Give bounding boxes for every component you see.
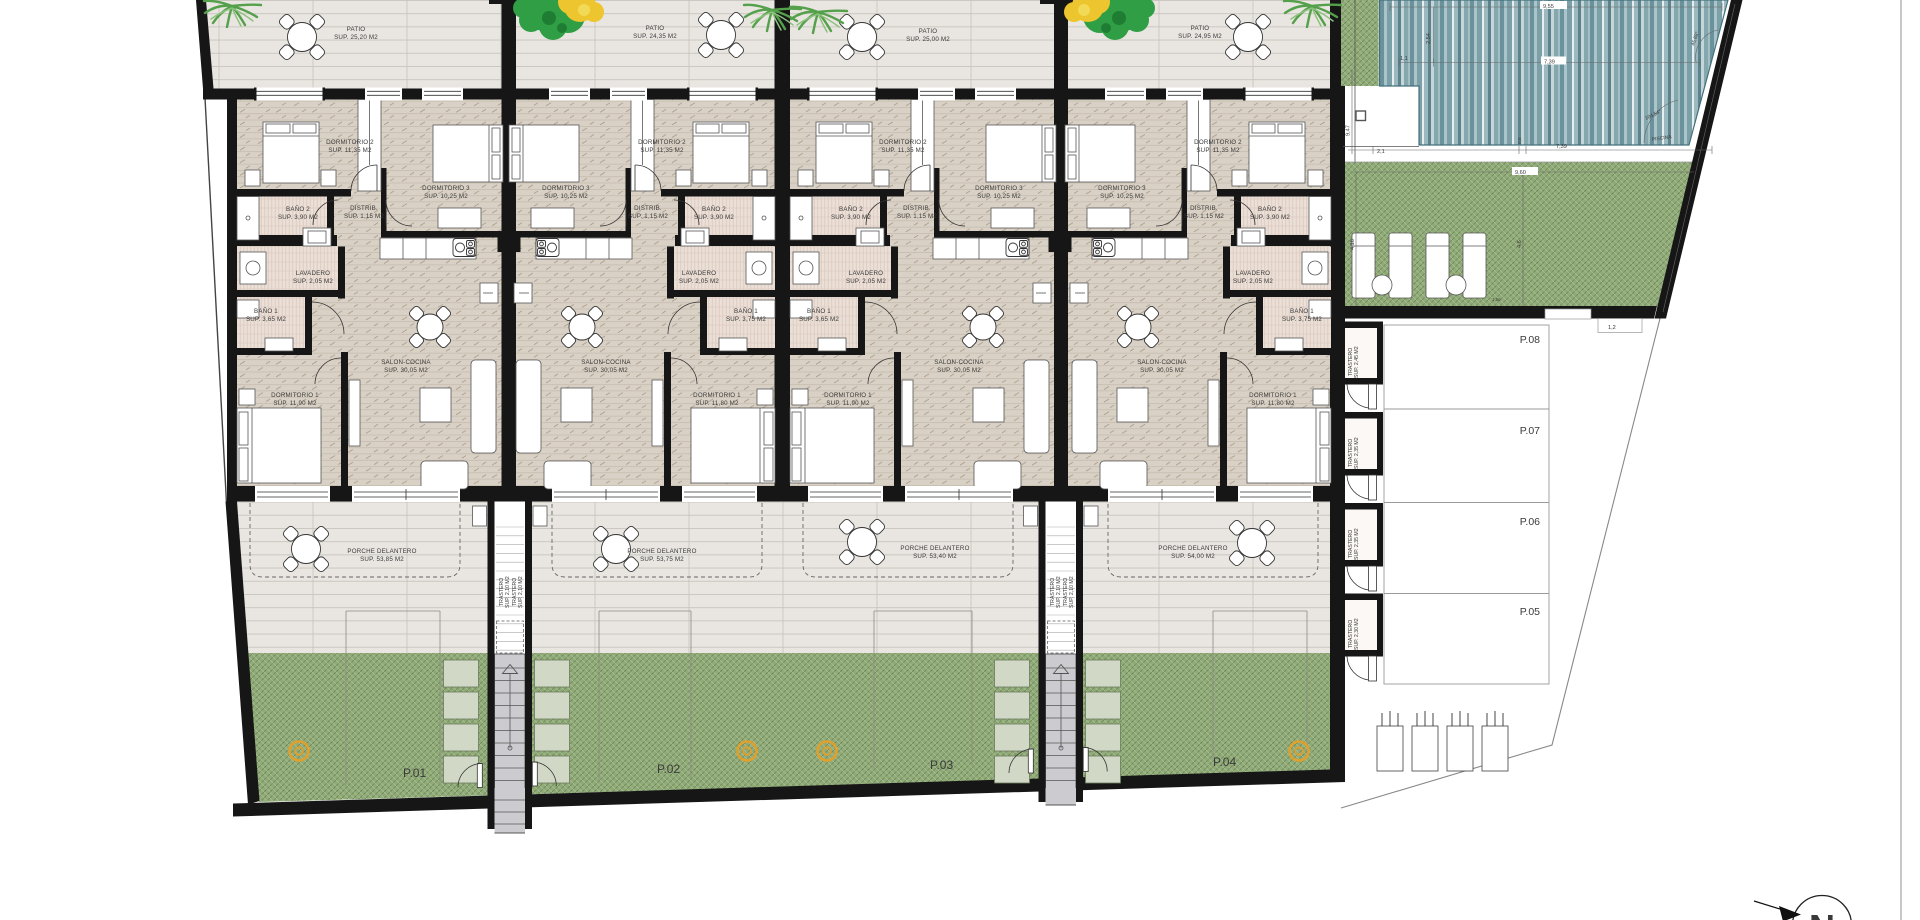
svg-text:SUP. 10,25 M2: SUP. 10,25 M2 (424, 193, 468, 200)
svg-text:SUP. 30,05 M2: SUP. 30,05 M2 (937, 367, 981, 374)
svg-text:DORMITORIO 3: DORMITORIO 3 (422, 185, 470, 192)
svg-text:SUP. 2,10 M2: SUP. 2,10 M2 (518, 576, 524, 608)
svg-text:SUP. 11,90 M2: SUP. 11,90 M2 (826, 400, 870, 407)
svg-text:P.07: P.07 (1520, 425, 1540, 437)
svg-text:SUP. 10,25 M2: SUP. 10,25 M2 (544, 193, 588, 200)
svg-text:SUP. 2,35 M2: SUP. 2,35 M2 (1354, 437, 1360, 469)
svg-text:LAVADERO: LAVADERO (296, 270, 330, 277)
svg-text:SUP. 2,35 M2: SUP. 2,35 M2 (1354, 528, 1360, 560)
svg-text:SUP. 11,80 M2: SUP. 11,80 M2 (1251, 400, 1295, 407)
svg-text:BAÑO 1: BAÑO 1 (807, 308, 831, 315)
svg-text:7,39: 7,39 (1544, 60, 1555, 66)
svg-text:BAÑO 1: BAÑO 1 (734, 308, 758, 315)
svg-text:SUP. 10,25 M2: SUP. 10,25 M2 (977, 193, 1021, 200)
svg-text:1,2: 1,2 (1608, 325, 1616, 331)
svg-text:P.06: P.06 (1520, 516, 1540, 528)
svg-text:1,56: 1,56 (1492, 297, 1501, 302)
svg-text:DISTRIB.: DISTRIB. (350, 205, 378, 212)
svg-text:SUP. 2,05 M2: SUP. 2,05 M2 (679, 278, 719, 285)
svg-text:DISTRIB.: DISTRIB. (634, 205, 662, 212)
svg-text:LAVADERO: LAVADERO (1236, 270, 1270, 277)
svg-text:DISTRIB.: DISTRIB. (1190, 205, 1218, 212)
svg-text:SALON-COCINA: SALON-COCINA (1137, 359, 1187, 366)
svg-text:DORMITORIO 3: DORMITORIO 3 (975, 185, 1023, 192)
svg-text:BAÑO 2: BAÑO 2 (839, 206, 863, 213)
svg-text:SUP. 3,65 M2: SUP. 3,65 M2 (799, 316, 839, 323)
svg-text:SUP. 11,35 M2: SUP. 11,35 M2 (881, 147, 925, 154)
svg-text:SUP. 24,95 M2: SUP. 24,95 M2 (1178, 33, 1222, 40)
svg-text:PORCHE DELANTERO: PORCHE DELANTERO (1158, 545, 1227, 552)
svg-text:PATIO: PATIO (347, 26, 366, 33)
svg-text:SUP. 1,15 M2: SUP. 1,15 M2 (897, 213, 937, 220)
svg-text:DORMITORIO 2: DORMITORIO 2 (638, 139, 686, 146)
svg-text:DORMITORIO 1: DORMITORIO 1 (271, 392, 319, 399)
svg-text:BAÑO 1: BAÑO 1 (254, 308, 278, 315)
svg-text:SUP. 2,10 M2: SUP. 2,10 M2 (1056, 576, 1062, 608)
svg-text:SUP. 2,30 M2: SUP. 2,30 M2 (1354, 618, 1360, 650)
svg-text:SUP. 2,10 M2: SUP. 2,10 M2 (505, 576, 511, 608)
svg-text:SUP. 24,35 M2: SUP. 24,35 M2 (633, 33, 677, 40)
svg-text:SUP. 3,90 M2: SUP. 3,90 M2 (694, 214, 734, 221)
svg-text:SUP. 2,05 M2: SUP. 2,05 M2 (293, 278, 333, 285)
svg-text:P.08: P.08 (1520, 334, 1540, 346)
svg-text:SUP. 3,90 M2: SUP. 3,90 M2 (1250, 214, 1290, 221)
svg-text:4,16: 4,16 (1350, 239, 1356, 250)
svg-text:SUP. 3,90 M2: SUP. 3,90 M2 (831, 214, 871, 221)
svg-text:SUP. 25,00 M2: SUP. 25,00 M2 (906, 36, 950, 43)
svg-text:LAVADERO: LAVADERO (849, 270, 883, 277)
svg-text:BAÑO 2: BAÑO 2 (702, 206, 726, 213)
svg-text:9,60: 9,60 (1515, 170, 1526, 176)
svg-text:P.01: P.01 (403, 766, 426, 780)
svg-text:DORMITORIO 3: DORMITORIO 3 (542, 185, 590, 192)
svg-text:P.05: P.05 (1520, 606, 1540, 618)
svg-text:BAÑO 2: BAÑO 2 (286, 206, 310, 213)
svg-text:SALON-COCINA: SALON-COCINA (934, 359, 984, 366)
svg-text:PORCHE DELANTERO: PORCHE DELANTERO (900, 545, 969, 552)
svg-text:PORCHE DELANTERO: PORCHE DELANTERO (627, 548, 696, 555)
svg-text:SUP. 3,75 M2: SUP. 3,75 M2 (726, 316, 766, 323)
svg-text:P.04: P.04 (1213, 755, 1236, 769)
svg-text:DORMITORIO 2: DORMITORIO 2 (1194, 139, 1242, 146)
svg-text:SUP. 2,45 M2: SUP. 2,45 M2 (1354, 346, 1360, 378)
svg-text:SUP. 25,20 M2: SUP. 25,20 M2 (334, 34, 378, 41)
svg-text:PATIO: PATIO (919, 28, 938, 35)
svg-text:SUP. 53,40 M2: SUP. 53,40 M2 (913, 553, 957, 560)
svg-text:SUP. 1,15 M2: SUP. 1,15 M2 (344, 213, 384, 220)
svg-text:SUP. 30,05 M2: SUP. 30,05 M2 (584, 367, 628, 374)
svg-text:9,55: 9,55 (1543, 4, 1554, 10)
svg-text:SUP. 3,75 M2: SUP. 3,75 M2 (1282, 316, 1322, 323)
svg-text:SUP. 1,15 M2: SUP. 1,15 M2 (1184, 213, 1224, 220)
svg-text:P.02: P.02 (657, 762, 680, 776)
svg-text:SUP. 1,15 M2: SUP. 1,15 M2 (628, 213, 668, 220)
svg-text:DORMITORIO 2: DORMITORIO 2 (879, 139, 927, 146)
svg-text:DORMITORIO 1: DORMITORIO 1 (1249, 392, 1297, 399)
svg-text:SUP. 30,05 M2: SUP. 30,05 M2 (1140, 367, 1184, 374)
svg-text:SUP. 54,00 M2: SUP. 54,00 M2 (1171, 553, 1215, 560)
svg-text:DORMITORIO 2: DORMITORIO 2 (326, 139, 374, 146)
svg-text:7,39: 7,39 (1556, 144, 1567, 150)
svg-text:2,54: 2,54 (1426, 33, 1432, 44)
svg-text:SUP. 11,35 M2: SUP. 11,35 M2 (640, 147, 684, 154)
svg-text:DORMITORIO 3: DORMITORIO 3 (1098, 185, 1146, 192)
svg-text:SUP. 2,05 M2: SUP. 2,05 M2 (1233, 278, 1273, 285)
svg-text:BAÑO 2: BAÑO 2 (1258, 206, 1282, 213)
svg-text:SUP. 2,10 M2: SUP. 2,10 M2 (1069, 576, 1075, 608)
svg-text:SUP. 11,90 M2: SUP. 11,90 M2 (273, 400, 317, 407)
svg-text:SUP. 11,35 M2: SUP. 11,35 M2 (1196, 147, 1240, 154)
svg-text:SUP. 10,25 M2: SUP. 10,25 M2 (1100, 193, 1144, 200)
svg-text:BAÑO 1: BAÑO 1 (1290, 308, 1314, 315)
svg-text:SUP. 53,85 M2: SUP. 53,85 M2 (360, 556, 404, 563)
svg-text:4,6: 4,6 (1517, 240, 1523, 248)
svg-text:PATIO: PATIO (1191, 25, 1210, 32)
svg-text:SUP. 30,05 M2: SUP. 30,05 M2 (384, 367, 428, 374)
svg-text:SALON-COCINA: SALON-COCINA (581, 359, 631, 366)
svg-text:LAVADERO: LAVADERO (682, 270, 716, 277)
svg-text:SUP. 3,65 M2: SUP. 3,65 M2 (246, 316, 286, 323)
svg-text:2,1: 2,1 (1377, 149, 1385, 155)
svg-text:SUP. 2,05 M2: SUP. 2,05 M2 (846, 278, 886, 285)
svg-text:SUP. 11,35 M2: SUP. 11,35 M2 (328, 147, 372, 154)
svg-text:DORMITORIO 1: DORMITORIO 1 (693, 392, 741, 399)
svg-text:SUP. 3,90 M2: SUP. 3,90 M2 (278, 214, 318, 221)
svg-text:PATIO: PATIO (646, 25, 665, 32)
svg-text:PORCHE DELANTERO: PORCHE DELANTERO (347, 548, 416, 555)
svg-text:SUP. 11,80 M2: SUP. 11,80 M2 (695, 400, 739, 407)
svg-text:1,1: 1,1 (1400, 56, 1408, 62)
svg-text:P.03: P.03 (930, 758, 953, 772)
svg-text:9,47: 9,47 (1346, 125, 1352, 136)
svg-text:N: N (1809, 907, 1835, 920)
svg-text:0,5: 0,5 (1517, 137, 1523, 144)
svg-text:DORMITORIO 1: DORMITORIO 1 (824, 392, 872, 399)
svg-text:SALON-COCINA: SALON-COCINA (381, 359, 431, 366)
svg-text:SUP. 53,75 M2: SUP. 53,75 M2 (640, 556, 684, 563)
svg-text:DISTRIB.: DISTRIB. (903, 205, 931, 212)
